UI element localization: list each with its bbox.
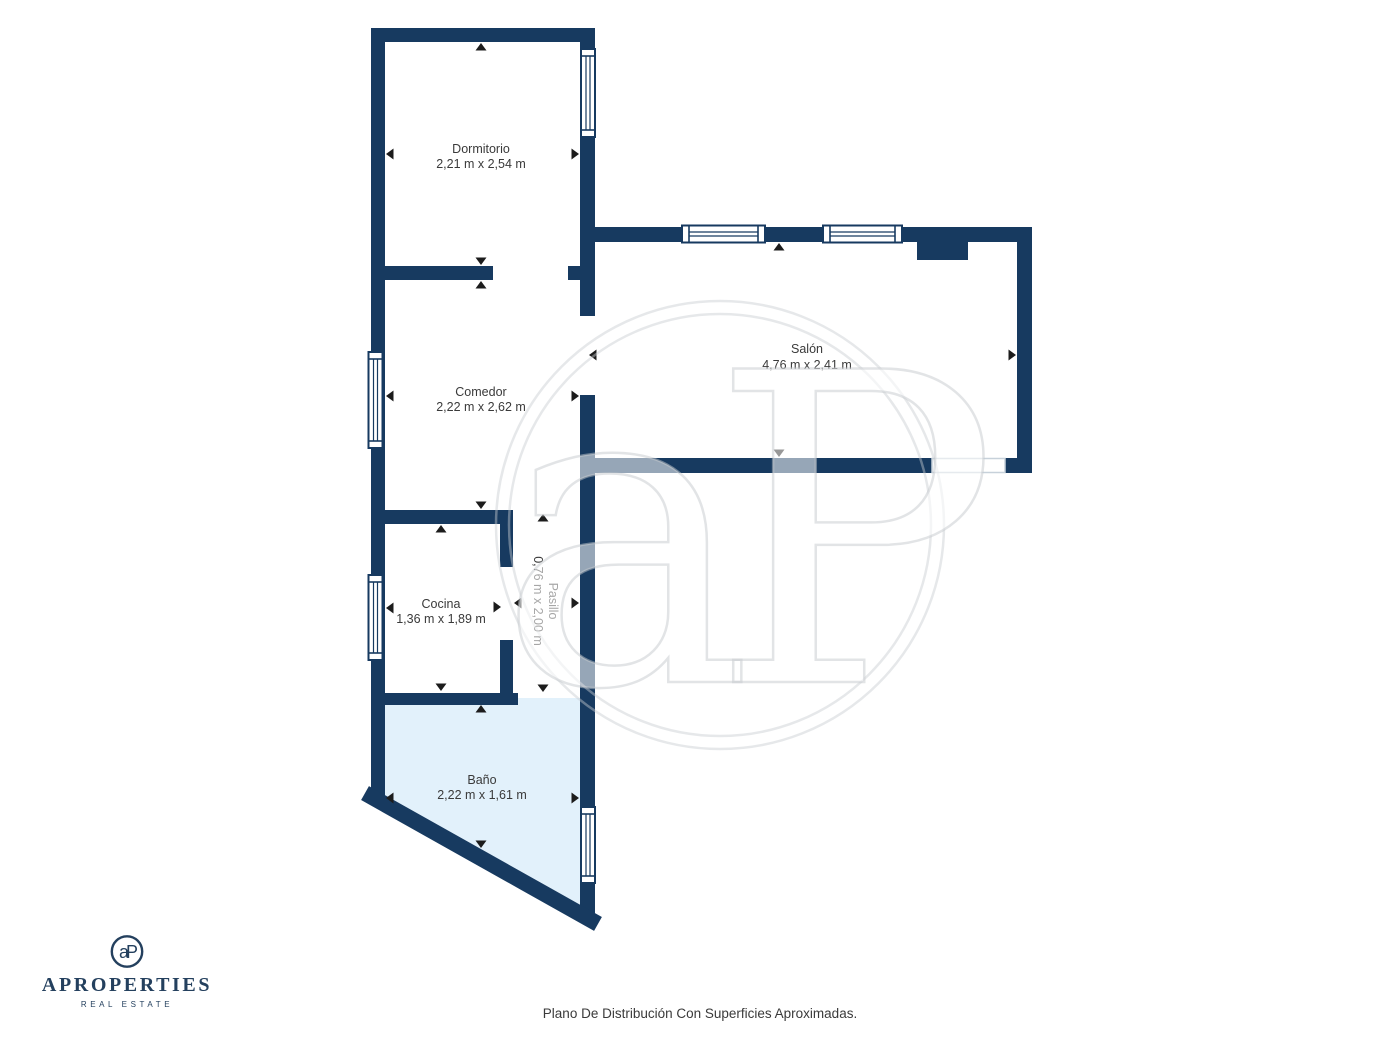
window-salon-2 — [823, 226, 902, 243]
measure-arrow-u — [774, 243, 785, 251]
watermark: aP — [496, 284, 985, 784]
room-dims-cocina: 1,36 m x 1,89 m — [396, 612, 486, 626]
window-frame — [823, 226, 902, 243]
window-frame — [369, 352, 383, 448]
measure-arrow-d — [476, 502, 487, 510]
window-frame — [581, 49, 595, 137]
room-label-bano: Baño — [467, 773, 496, 787]
plan-caption: Plano De Distribución Con Superficies Ap… — [0, 1006, 1400, 1021]
window-frame — [369, 575, 383, 660]
window-comedor — [369, 352, 383, 448]
room-label-cocina: Cocina — [422, 597, 461, 611]
measure-arrow-d — [476, 258, 487, 266]
measure-arrow-u — [436, 525, 447, 533]
logo-monogram-svg: aP — [34, 933, 220, 970]
floor-plan-page: Dormitorio 2,21 m x 2,54 m Comedor 2,22 … — [0, 0, 1400, 1050]
room-dims-dormitorio: 2,21 m x 2,54 m — [436, 157, 526, 171]
measure-arrow-l — [386, 391, 394, 402]
measure-arrow-u — [476, 43, 487, 51]
measure-arrow-u — [476, 281, 487, 289]
measure-arrow-r — [572, 149, 580, 160]
measure-arrow-l — [386, 149, 394, 160]
window-cocina — [369, 575, 383, 660]
measure-arrow-l — [386, 603, 394, 614]
measure-arrow-r — [1009, 350, 1017, 361]
window-dormitorio — [581, 49, 595, 137]
logo-monogram-wrap: aP — [34, 933, 220, 970]
window-frame — [581, 807, 595, 883]
watermark-monogram: aP — [497, 284, 985, 784]
floor-plan-drawing: Dormitorio 2,21 m x 2,54 m Comedor 2,22 … — [0, 0, 1400, 1050]
measure-arrow-d — [436, 684, 447, 692]
window-salon-1 — [682, 226, 765, 243]
brand-name: APROPERTIES — [34, 974, 220, 997]
room-dims-bano: 2,22 m x 1,61 m — [437, 788, 527, 802]
agency-logo: aP APROPERTIES REAL ESTATE — [34, 933, 220, 1009]
window-frame — [682, 226, 765, 243]
room-label-dormitorio: Dormitorio — [452, 142, 510, 156]
window-bano — [581, 807, 595, 883]
logo-monogram: aP — [119, 942, 138, 962]
